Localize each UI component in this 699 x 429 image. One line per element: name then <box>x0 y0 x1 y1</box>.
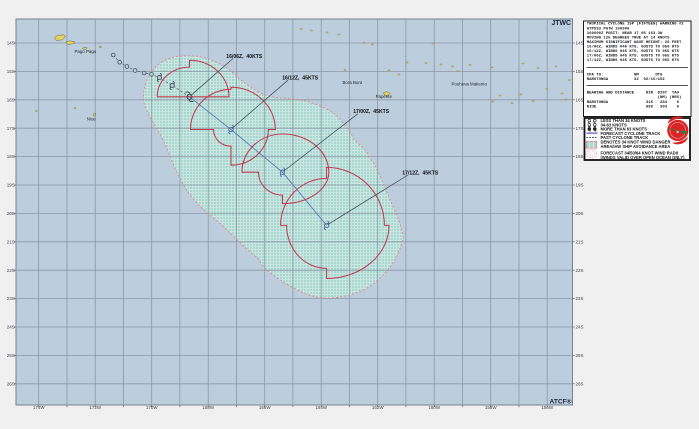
svg-text:172W: 172W <box>89 405 102 410</box>
svg-text:25S: 25S <box>576 353 584 358</box>
svg-text:CPA TO: NM D: CPA TO: NM DTG <box>587 74 663 78</box>
svg-text:23S: 23S <box>576 296 584 301</box>
svg-text:Bora Bora: Bora Bora <box>343 80 363 85</box>
svg-text:ATCF®: ATCF® <box>550 397 572 405</box>
svg-text:14S: 14S <box>576 41 584 46</box>
svg-text:22S: 22S <box>7 268 15 273</box>
svg-text:JTWC: JTWC <box>551 20 571 27</box>
svg-text:21S: 21S <box>7 239 15 244</box>
svg-text:16/12Z, 45KTS: 16/12Z, 45KTS <box>282 76 319 82</box>
svg-text:20S: 20S <box>7 211 15 216</box>
svg-text:18S: 18S <box>7 154 15 159</box>
svg-text:168W: 168W <box>202 405 215 410</box>
svg-text:23S: 23S <box>7 296 15 301</box>
svg-text:TROPICAL CYCLONE 15P (FIFTEEN): TROPICAL CYCLONE 15P (FIFTEEN) WARNING #… <box>587 22 685 27</box>
svg-text:158W: 158W <box>485 405 498 410</box>
svg-text:160W: 160W <box>428 405 441 410</box>
svg-text:156W: 156W <box>541 405 554 410</box>
svg-text:19S: 19S <box>576 183 584 188</box>
svg-text:Papeete: Papeete <box>376 94 393 99</box>
svg-text:RAROTONGA 315: RAROTONGA 315 284 0 <box>587 101 680 105</box>
svg-text:162W: 162W <box>372 405 385 410</box>
svg-text:15S: 15S <box>576 69 584 74</box>
svg-text:17S: 17S <box>576 126 584 131</box>
svg-text:166W: 166W <box>259 405 272 410</box>
svg-text:14S: 14S <box>7 41 15 46</box>
svg-text:17/00Z, 45KTS: 17/00Z, 45KTS <box>353 109 390 115</box>
svg-text:17/12Z, WINDS 045 KTS, GUSTS T: 17/12Z, WINDS 045 KTS, GUSTS TO 055 KTS <box>587 58 680 63</box>
svg-text:(NM) (HRS): (NM) (HRS) <box>587 95 682 100</box>
svg-text:18S: 18S <box>576 154 584 159</box>
svg-text:16/06Z, WINDS 040 KTS, GUSTS T: 16/06Z, WINDS 040 KTS, GUSTS TO 050 KTS <box>587 44 680 49</box>
svg-text:RAROTONGA 32 02/16/: RAROTONGA 32 02/16/15Z <box>587 77 666 82</box>
svg-text:NIUE 080: NIUE 080 303 0 <box>587 106 680 110</box>
svg-text:25S: 25S <box>7 353 15 358</box>
svg-text:MOVING 125 DEGREES TRUE AT 14: MOVING 125 DEGREES TRUE AT 14 KNOTS <box>587 36 670 40</box>
svg-text:174W: 174W <box>33 405 46 410</box>
svg-text:26S: 26S <box>7 381 15 386</box>
svg-text:BEARING AND DISTANCE DIR: BEARING AND DISTANCE DIR DIST TAU <box>587 92 680 96</box>
svg-text:16/06Z, 40KTS: 16/06Z, 40KTS <box>226 54 263 60</box>
svg-text:22S: 22S <box>576 268 584 273</box>
svg-text:Pago Pago: Pago Pago <box>75 49 97 54</box>
svg-text:MAXIMUM SIGNIFICANT WAVE HEIGH: MAXIMUM SIGNIFICANT WAVE HEIGHT: 20 FEET <box>587 41 682 45</box>
svg-text:17/00Z, WINDS 045 KTS, GUSTS T: 17/00Z, WINDS 045 KTS, GUSTS TO 055 KTS <box>587 54 680 59</box>
svg-text:(WINDS VALID OVER OPEN OCEAN O: (WINDS VALID OVER OPEN OCEAN ONLY) <box>601 155 686 160</box>
svg-text:24S: 24S <box>576 325 584 330</box>
svg-text:Pouheva Makemo: Pouheva Makemo <box>452 82 488 87</box>
svg-text:17S: 17S <box>7 126 15 131</box>
svg-text:160600Z POSIT: NEAR 17.0S 163.: 160600Z POSIT: NEAR 17.0S 163.3W <box>587 32 663 36</box>
svg-text:21S: 21S <box>576 239 584 244</box>
svg-text:170W: 170W <box>146 405 159 410</box>
svg-text:16S: 16S <box>576 97 584 102</box>
svg-text:24S: 24S <box>7 325 15 330</box>
svg-text:Niue: Niue <box>87 117 97 122</box>
svg-text:20S: 20S <box>576 211 584 216</box>
svg-text:16/12Z, WINDS 045 KTS, GUSTS T: 16/12Z, WINDS 045 KTS, GUSTS TO 055 KTS <box>587 49 680 54</box>
svg-text:164W: 164W <box>315 405 328 410</box>
svg-text:19S: 19S <box>7 183 15 188</box>
svg-text:17/12Z, 45KTS: 17/12Z, 45KTS <box>402 170 439 176</box>
svg-text:WTPS33 PGTW 160900: WTPS33 PGTW 160900 <box>587 27 630 31</box>
svg-text:26S: 26S <box>576 381 584 386</box>
svg-text:16S: 16S <box>7 97 15 102</box>
svg-text:15S: 15S <box>7 69 15 74</box>
svg-text:AREA/IAW SHIP AVOIDANCE AREA: AREA/IAW SHIP AVOIDANCE AREA <box>601 144 671 149</box>
